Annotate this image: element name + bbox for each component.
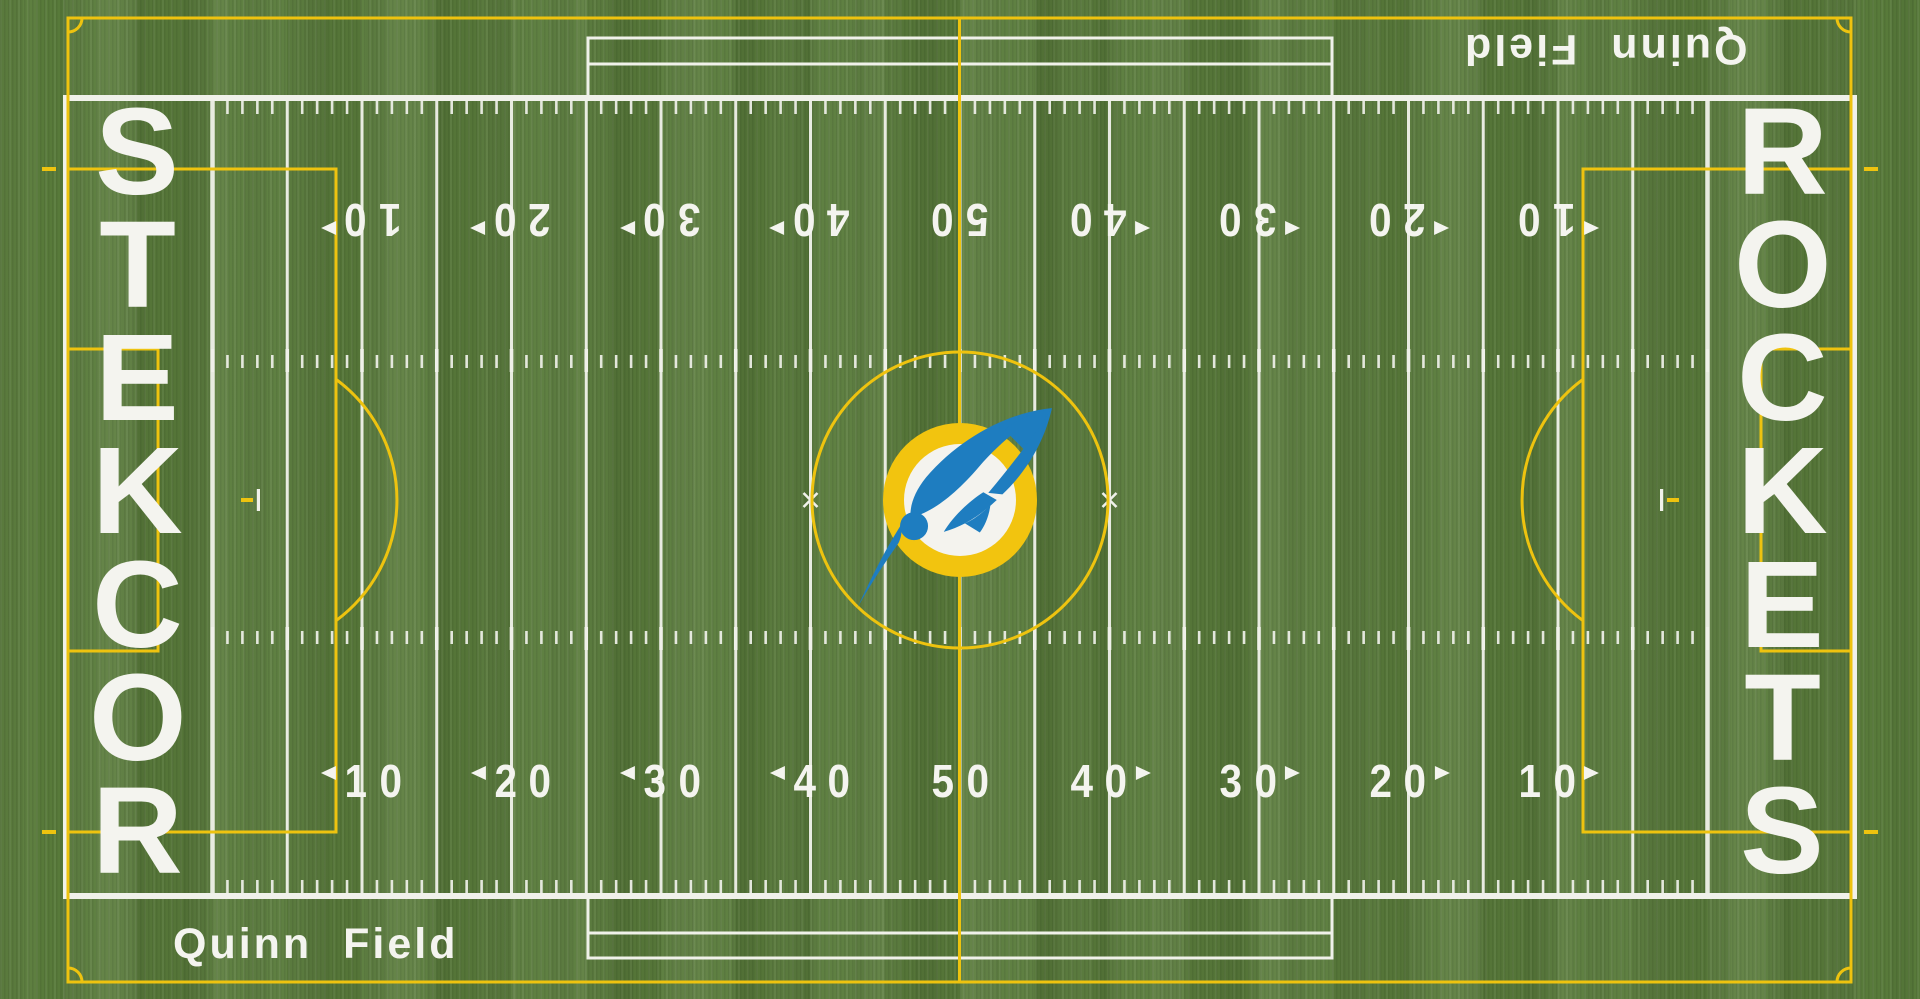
yard-number-10: 10	[1517, 763, 1599, 801]
field-name-top: Quinn Field	[1462, 24, 1747, 73]
yard-number-30: 30	[620, 763, 702, 801]
penalty-arc-left	[336, 379, 397, 620]
yard-number-50: 50	[930, 200, 990, 238]
yard-number-40: 40	[1068, 763, 1150, 801]
yard-arrow-icon	[620, 221, 635, 235]
yard-arrow-icon	[1435, 766, 1450, 780]
endzone-letter: K	[1737, 443, 1828, 540]
yard-arrow-icon	[769, 221, 784, 235]
yard-number-10: 10	[1517, 200, 1599, 238]
yard-number-20: 20	[470, 200, 552, 238]
endzone-letter: E	[1741, 557, 1825, 654]
yard-arrow-icon	[1136, 221, 1151, 235]
yard-number-10: 10	[321, 763, 403, 801]
yard-arrow-icon	[321, 766, 336, 780]
yard-number-40: 40	[769, 763, 851, 801]
yard-number-20: 20	[470, 763, 552, 801]
yardline-numbers-bottom: 102030405040302010	[0, 763, 1920, 801]
try-mark-right	[1660, 489, 1663, 511]
yard-arrow-icon	[1584, 766, 1599, 780]
yardline-numbers-top: 102030405040302010	[0, 200, 1920, 238]
yard-arrow-icon	[1285, 221, 1300, 235]
yard-arrow-icon	[1584, 221, 1599, 235]
field-name-bottom: Quinn Field	[173, 920, 458, 969]
yard-number-50: 50	[930, 763, 990, 801]
yard-arrow-icon	[620, 766, 635, 780]
endzone-letter: O	[89, 670, 187, 767]
yard-arrow-icon	[1285, 766, 1300, 780]
endzone-letter: S	[96, 104, 180, 201]
yard-arrow-icon	[321, 221, 336, 235]
yard-number-40: 40	[769, 200, 851, 238]
endzone-letter: C	[1737, 330, 1828, 427]
yard-number-40: 40	[1068, 200, 1150, 238]
penalty-arc-right	[1522, 379, 1583, 620]
yard-number-10: 10	[321, 200, 403, 238]
endzone-letter: K	[92, 443, 183, 540]
yard-arrow-icon	[1435, 221, 1450, 235]
yard-number-30: 30	[620, 200, 702, 238]
endzone-letter: R	[1737, 104, 1828, 201]
yard-arrow-icon	[470, 221, 485, 235]
yard-number-20: 20	[1367, 200, 1449, 238]
yard-number-20: 20	[1367, 763, 1449, 801]
yard-number-30: 30	[1218, 763, 1300, 801]
yard-arrow-icon	[1136, 766, 1151, 780]
try-mark-left	[257, 489, 260, 511]
field-markings	[0, 0, 1920, 999]
endzone-letter: T	[1744, 670, 1821, 767]
yard-arrow-icon	[470, 766, 485, 780]
yard-arrow-icon	[769, 766, 784, 780]
football-field: STEKCOR ROCKETS 102030405040302010 10203…	[0, 0, 1920, 999]
endzone-letter: E	[96, 330, 180, 427]
endzone-letter: C	[92, 557, 183, 654]
yard-number-30: 30	[1218, 200, 1300, 238]
rockets-logo	[825, 379, 1078, 632]
